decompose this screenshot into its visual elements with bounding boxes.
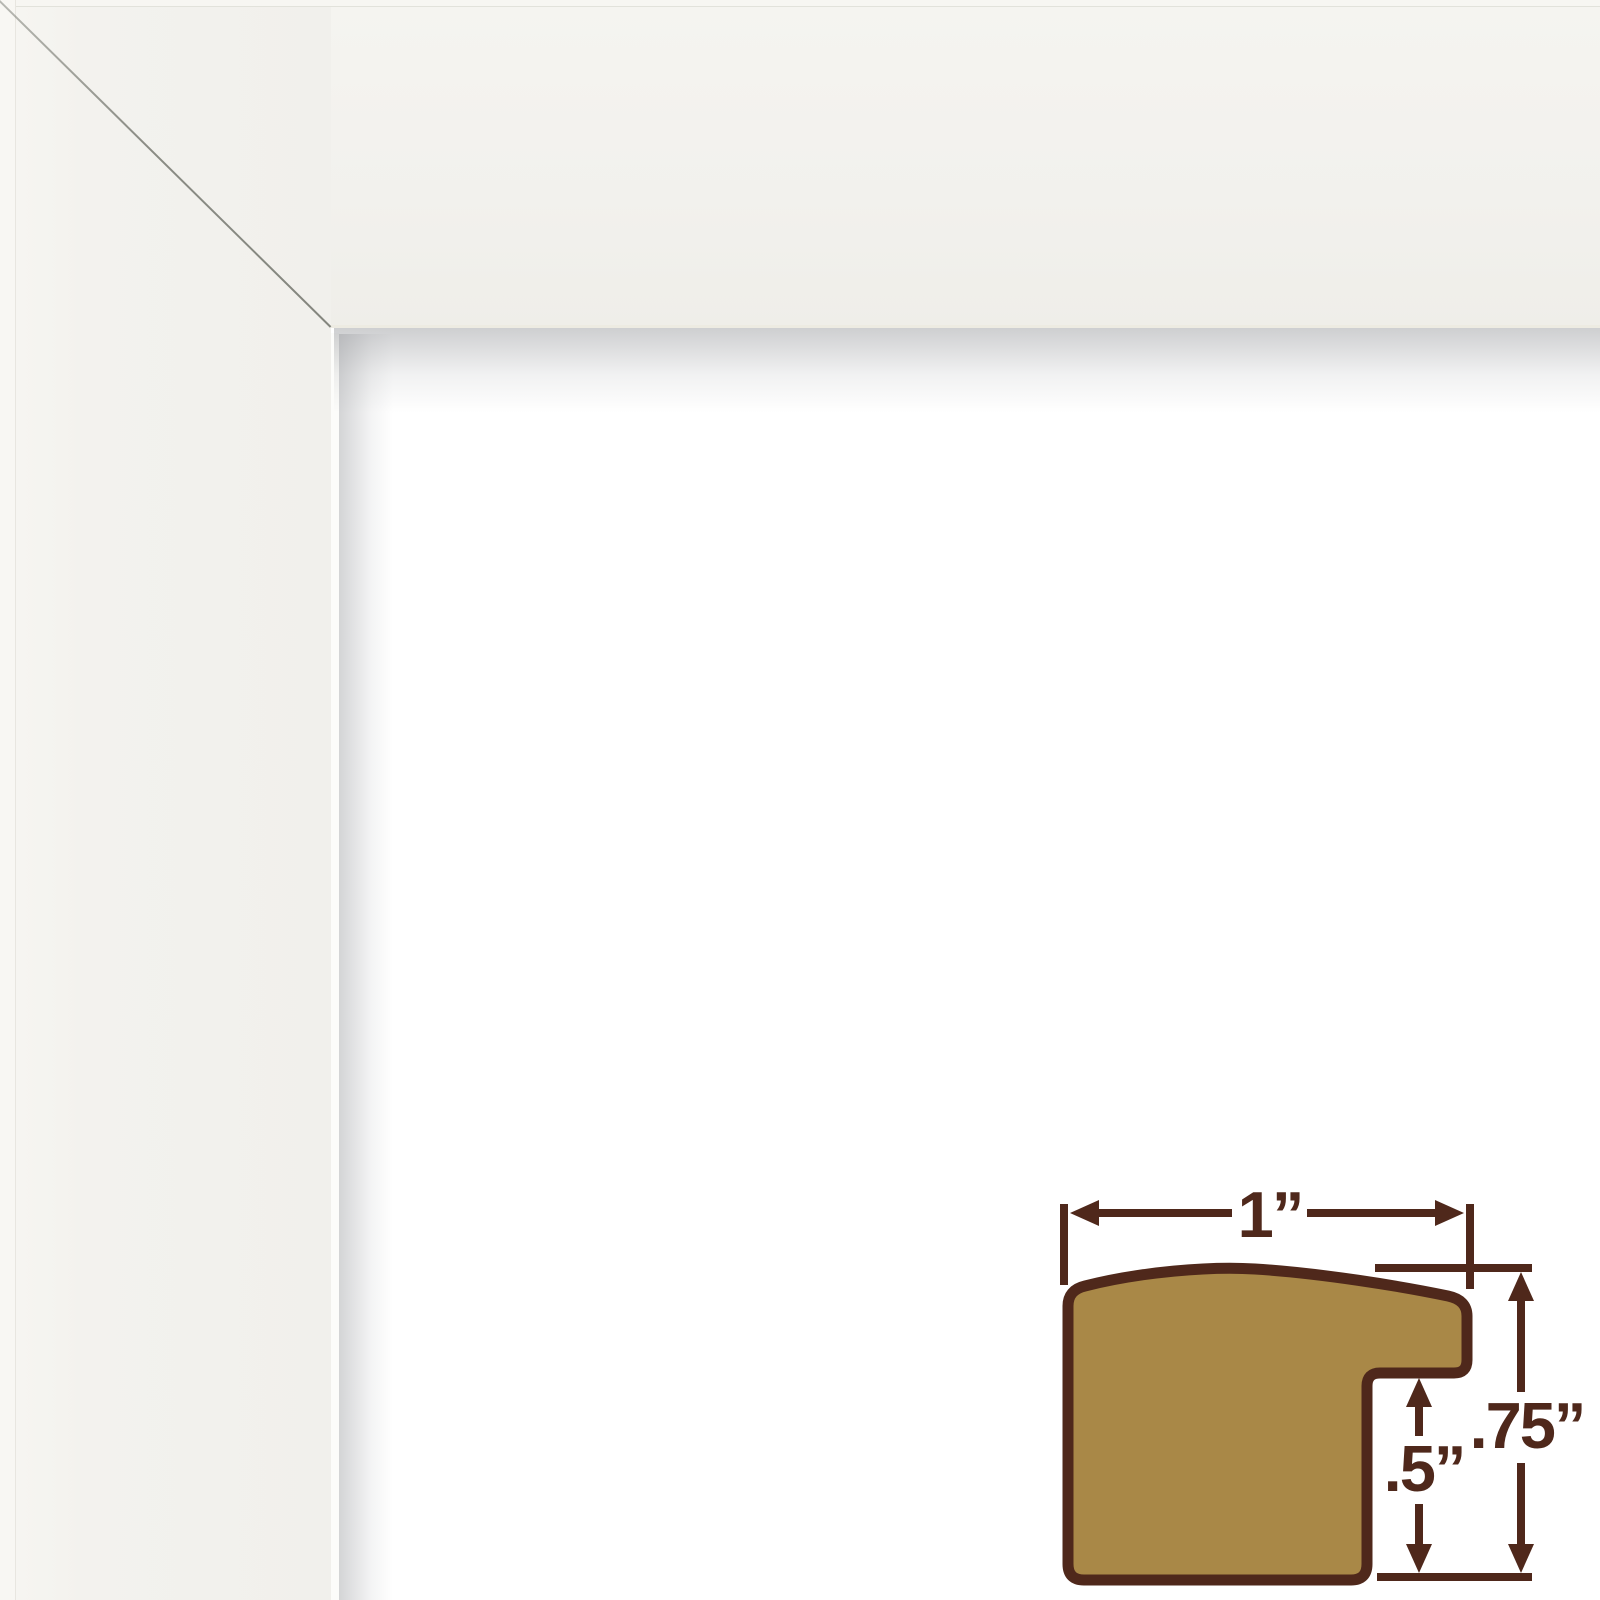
rabbet-depth-label: .5” xyxy=(1384,1432,1465,1505)
height-dimension-label: .75” xyxy=(1470,1389,1585,1462)
arrowhead-up-75-icon xyxy=(1508,1272,1534,1301)
moulding-profile-diagram: 1” .75” .5” xyxy=(0,0,1600,1600)
arrowhead-right-icon xyxy=(1435,1200,1464,1226)
arrowhead-down-75-icon xyxy=(1508,1544,1534,1573)
arrowhead-up-5-icon xyxy=(1406,1378,1432,1407)
arrowhead-down-5-icon xyxy=(1406,1544,1432,1573)
product-image: 1” .75” .5” xyxy=(0,0,1600,1600)
arrowhead-left-icon xyxy=(1070,1200,1099,1226)
moulding-cross-section xyxy=(1068,1268,1467,1580)
width-dimension-label: 1” xyxy=(1238,1178,1303,1251)
